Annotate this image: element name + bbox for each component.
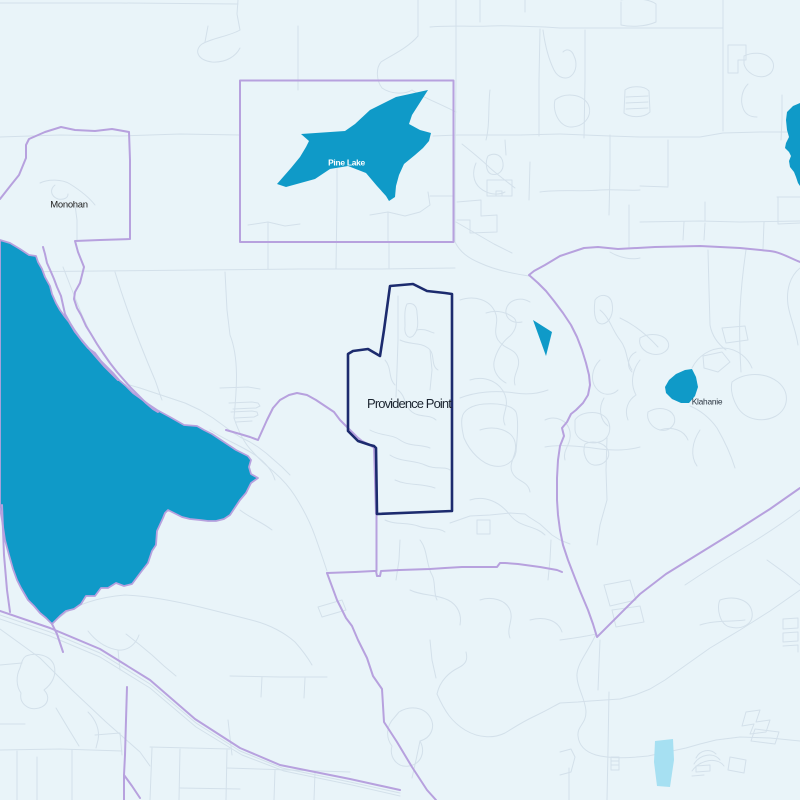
svg-text:Monohan: Monohan (50, 200, 88, 211)
svg-text:Pine Lake: Pine Lake (328, 158, 365, 168)
svg-text:Klahanie: Klahanie (692, 397, 723, 407)
svg-text:Providence Point: Providence Point (367, 396, 452, 411)
